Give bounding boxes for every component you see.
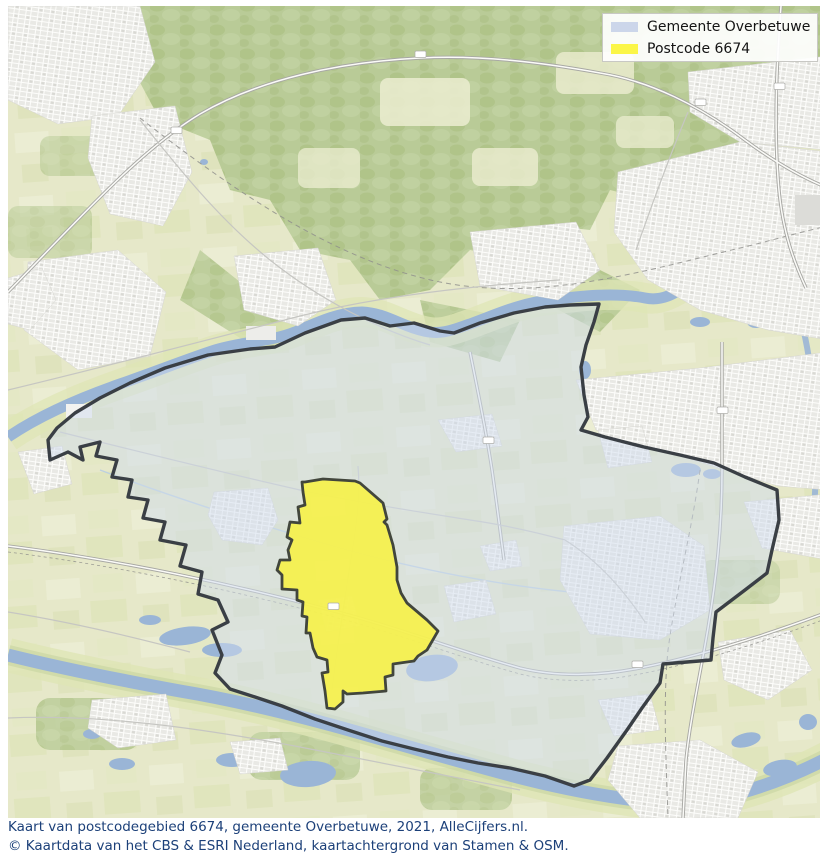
caption-line-1: Kaart van postcodegebied 6674, gemeente … — [8, 818, 820, 837]
postcode-swatch-icon — [611, 44, 638, 54]
caption: Kaart van postcodegebied 6674, gemeente … — [8, 818, 820, 855]
legend-label-municipality: Gemeente Overbetuwe — [647, 20, 810, 34]
legend-label-postcode: Postcode 6674 — [647, 42, 750, 56]
caption-line-2: © Kaartdata van het CBS & ESRI Nederland… — [8, 837, 820, 856]
legend-item-postcode: Postcode 6674 — [611, 39, 809, 58]
municipality-swatch-icon — [611, 22, 638, 32]
map-canvas — [8, 6, 820, 818]
map-image — [8, 6, 820, 818]
legend-item-municipality: Gemeente Overbetuwe — [611, 17, 809, 36]
legend: Gemeente Overbetuwe Postcode 6674 — [602, 13, 818, 62]
page: Gemeente Overbetuwe Postcode 6674 Kaart … — [0, 0, 828, 861]
